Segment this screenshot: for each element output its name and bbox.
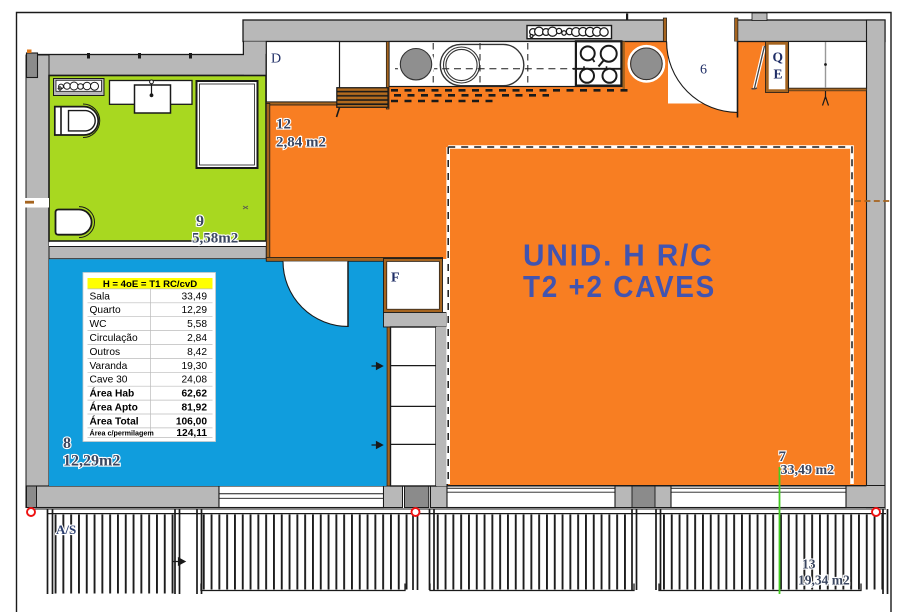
svg-text:Sala: Sala xyxy=(90,291,111,302)
svg-text:H = 4oE = T1 RC/cvD: H = 4oE = T1 RC/cvD xyxy=(103,279,197,290)
svg-text:62,62: 62,62 xyxy=(182,389,208,400)
svg-text:UNID. H R/C: UNID. H R/C xyxy=(523,239,714,273)
svg-text:E: E xyxy=(774,67,783,82)
svg-text:Q: Q xyxy=(773,50,784,65)
svg-text:8: 8 xyxy=(63,435,71,452)
svg-text:12: 12 xyxy=(276,117,291,133)
svg-text:Cave 30: Cave 30 xyxy=(90,375,128,386)
svg-text:33,49 m2: 33,49 m2 xyxy=(781,463,835,478)
svg-text:T2 +2 CAVES: T2 +2 CAVES xyxy=(523,270,716,304)
svg-text:8,42: 8,42 xyxy=(187,347,207,358)
svg-text:5,58: 5,58 xyxy=(187,319,207,330)
svg-text:9: 9 xyxy=(196,213,204,230)
svg-text:33,49: 33,49 xyxy=(182,291,208,302)
svg-text:Quarto: Quarto xyxy=(90,305,121,316)
svg-text:2,84: 2,84 xyxy=(187,333,207,344)
svg-text:24,08: 24,08 xyxy=(182,375,208,386)
svg-text:Área c/permilagem: Área c/permilagem xyxy=(90,428,154,437)
svg-text:19,30: 19,30 xyxy=(182,361,208,372)
svg-text:12,29m2: 12,29m2 xyxy=(63,453,120,470)
svg-text:Área Total: Área Total xyxy=(90,414,139,427)
svg-text:Área Apto: Área Apto xyxy=(90,401,138,414)
svg-text:Circulação: Circulação xyxy=(90,333,138,344)
svg-text:WC: WC xyxy=(90,319,107,330)
svg-text:13: 13 xyxy=(802,557,816,572)
svg-text:Outros: Outros xyxy=(90,347,121,358)
svg-text:2,84 m2: 2,84 m2 xyxy=(276,135,326,151)
svg-text:D: D xyxy=(271,52,281,67)
svg-text:19,34 m2: 19,34 m2 xyxy=(798,573,850,588)
svg-text:6: 6 xyxy=(700,63,707,78)
svg-text:5,58m2: 5,58m2 xyxy=(192,231,238,247)
svg-text:106,00: 106,00 xyxy=(176,416,207,427)
svg-text:F: F xyxy=(391,271,400,286)
svg-text:Área Hab: Área Hab xyxy=(90,387,135,400)
svg-text:81,92: 81,92 xyxy=(182,403,208,414)
svg-text:124,11: 124,11 xyxy=(176,428,207,439)
svg-text:Varanda: Varanda xyxy=(90,361,128,372)
svg-text:A/S: A/S xyxy=(56,522,76,537)
svg-text:12,29: 12,29 xyxy=(182,305,208,316)
